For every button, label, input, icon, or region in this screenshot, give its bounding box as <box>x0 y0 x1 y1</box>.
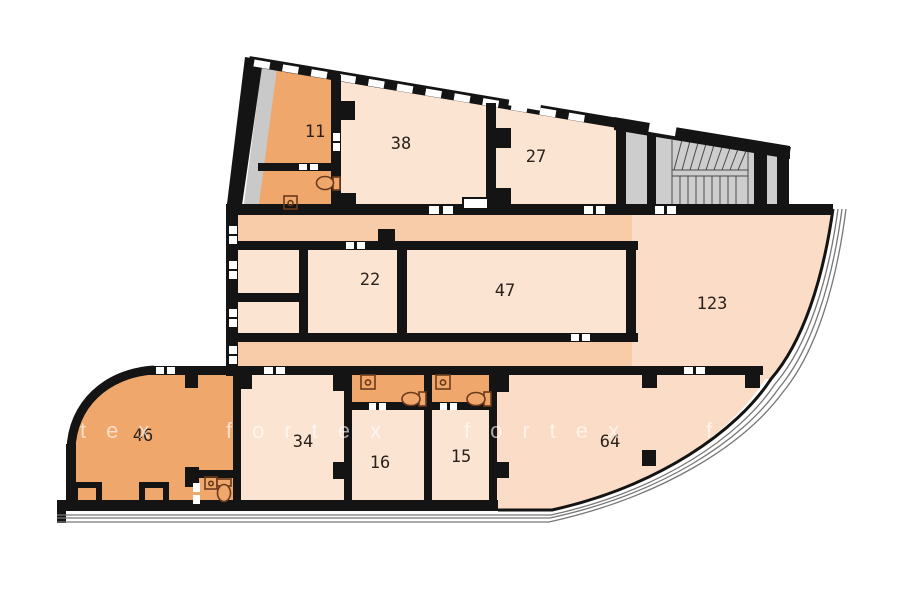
watermark-text: fortex <box>464 418 639 443</box>
corridor-top-floor <box>238 211 632 245</box>
room-47-label: 47 <box>495 281 515 301</box>
room-123-floor <box>632 211 833 379</box>
corridor-bottom-floor <box>238 342 632 369</box>
room-27-label: 27 <box>526 147 546 167</box>
room-16-label: 16 <box>370 453 390 473</box>
room-11-label: 11 <box>305 122 325 142</box>
floor-plan-canvas: 11 38 27 22 47 123 46 34 16 15 64 tex fo… <box>0 0 900 604</box>
room-fills <box>71 64 833 511</box>
room-15-label: 15 <box>451 447 471 467</box>
room-22-label: 22 <box>360 270 380 290</box>
watermark-text: fortex <box>226 418 401 443</box>
toilet-icon <box>467 392 491 406</box>
watermark-text: f <box>706 418 732 443</box>
floor-plan-page: 11 38 27 22 47 123 46 34 16 15 64 tex fo… <box>0 0 900 604</box>
room-38-label: 38 <box>391 134 411 154</box>
toilet-icon <box>402 392 426 406</box>
toilet-icon <box>317 177 341 191</box>
toilet-icon <box>217 479 231 502</box>
room-123-label: 123 <box>697 294 728 314</box>
watermark-text: tex <box>80 418 169 443</box>
